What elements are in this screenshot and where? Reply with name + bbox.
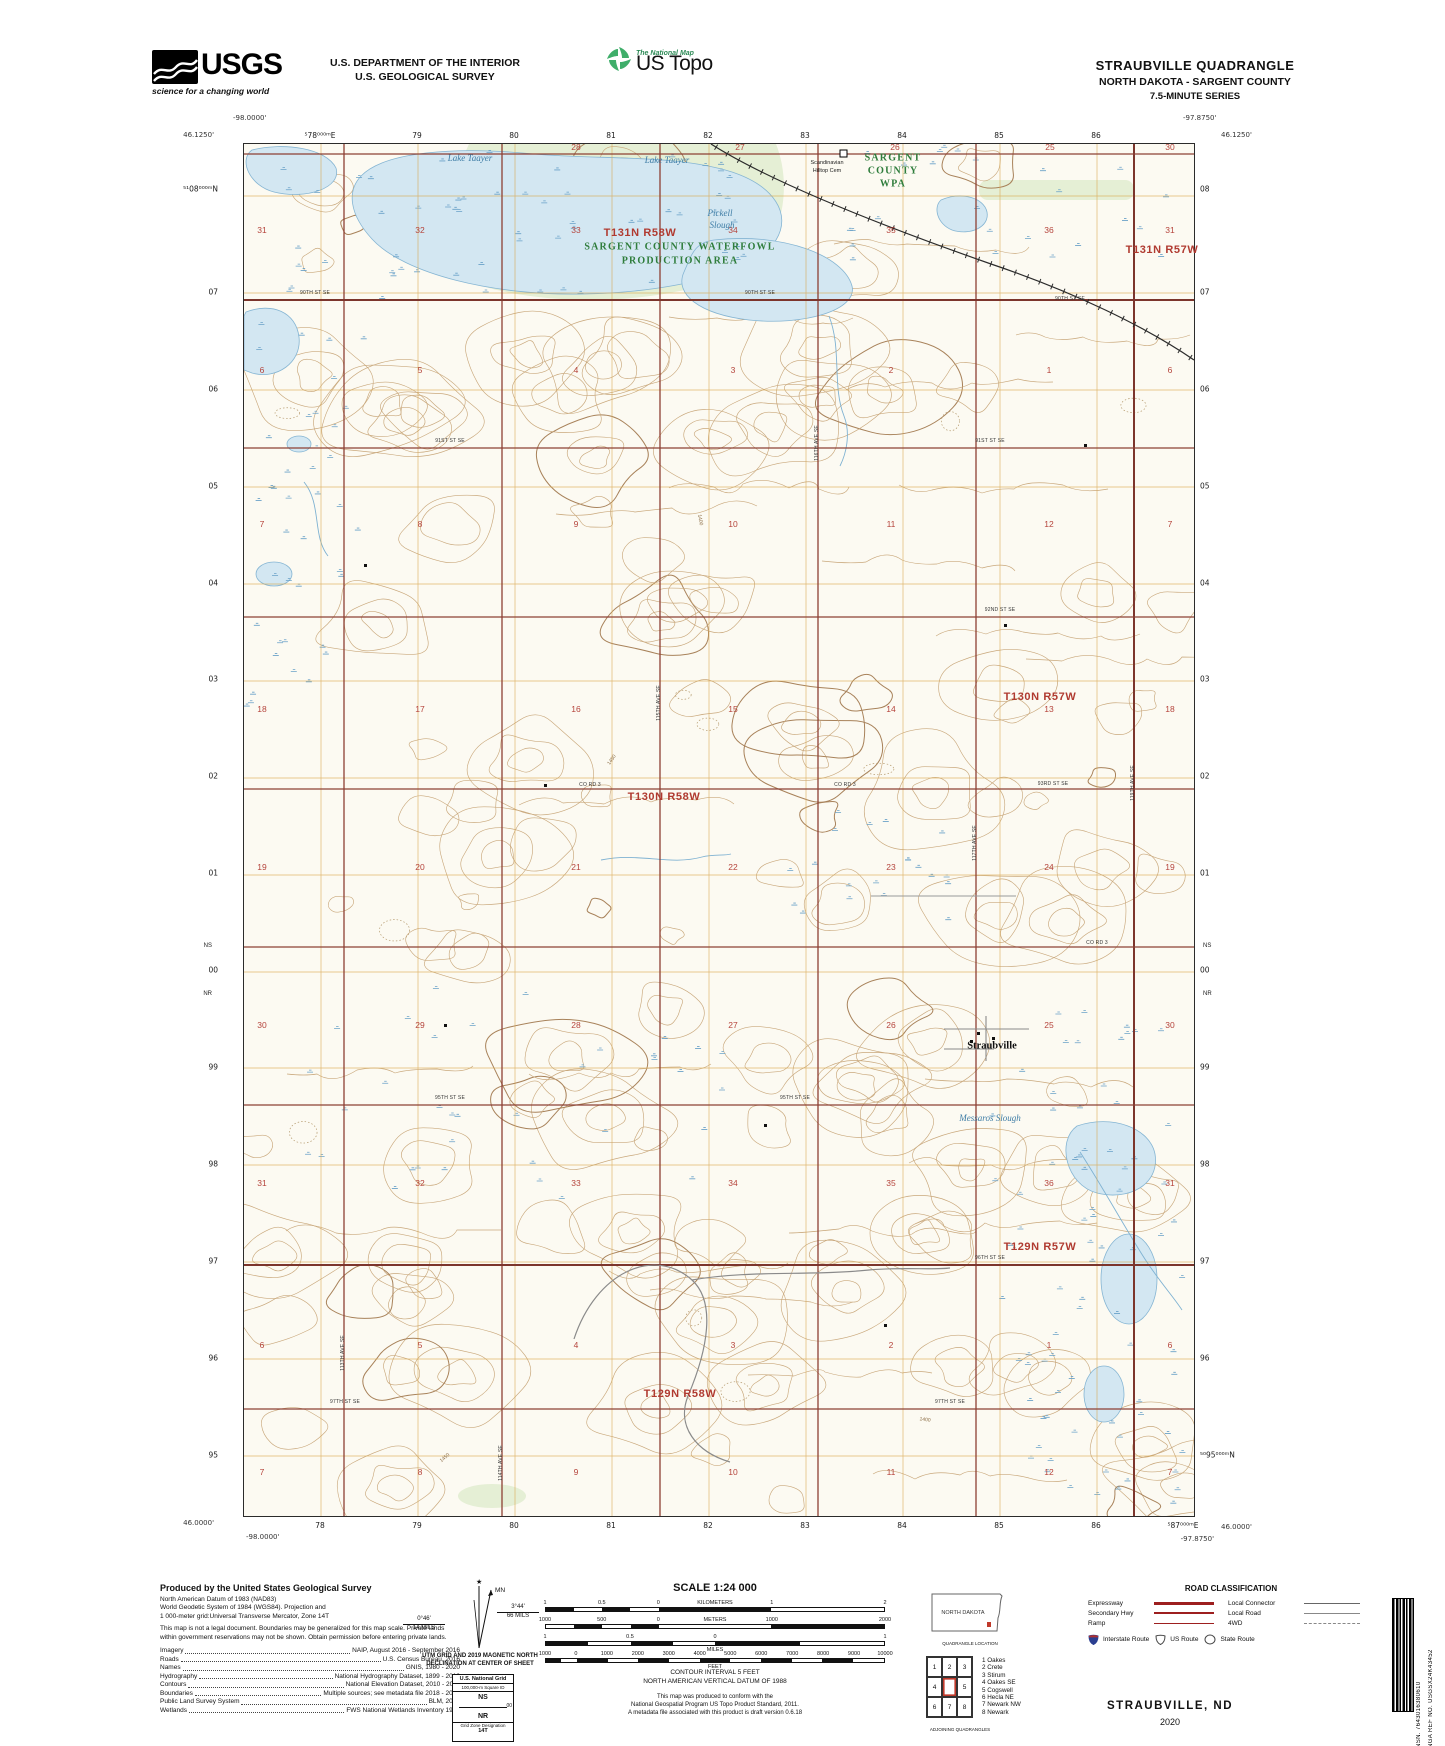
adjoining-quad-name: 6 Hecla NE — [982, 1694, 1021, 1701]
grid-label-bottom: 78 — [315, 1521, 325, 1530]
grid-label-left: 99 — [208, 1063, 218, 1072]
grid-label-right: 00 — [1200, 966, 1210, 975]
adjoining-quad-name: 1 Oakes — [982, 1657, 1021, 1664]
usgs-wordmark: USGS — [201, 50, 282, 80]
grid-label-bottom: 79 — [412, 1521, 422, 1530]
us-topo-sheet: USGS science for a changing world U.S. D… — [0, 0, 1445, 1746]
adjoining-cell: 1 — [927, 1657, 942, 1677]
svg-text:MN: MN — [495, 1587, 505, 1594]
grid-square-id: NR — [203, 991, 212, 997]
scale-bar: 10005000METERS10002000 — [545, 1617, 885, 1634]
adjoining-quadrangles-names: 1 Oakes2 Crete3 Stirum4 Oakes SE5 Cogswe… — [982, 1657, 1021, 1716]
adjoining-quad-name: 7 Newark NW — [982, 1701, 1021, 1708]
ustopo-logo: The National Map US Topo — [606, 46, 713, 72]
us-route-shield-icon — [1155, 1634, 1166, 1645]
sheet-name: STRAUBVILLE, ND — [1040, 1700, 1300, 1712]
quad-heading: STRAUBVILLE QUADRANGLE NORTH DAKOTA - SA… — [1020, 58, 1370, 102]
grid-label-right: 99 — [1200, 1063, 1210, 1072]
this-quadrangle-cell — [942, 1677, 957, 1697]
us-national-grid-box: U.S. National Grid 100,000-m Square ID N… — [452, 1674, 514, 1742]
grid-label-left: 01 — [208, 869, 218, 878]
local-connector-line — [1304, 1603, 1360, 1604]
department-heading: U.S. DEPARTMENT OF THE INTERIOR U.S. GEO… — [330, 56, 520, 84]
usng-zone: 14T — [453, 1728, 513, 1734]
usgs-wave-icon — [152, 50, 198, 84]
grid-label-top: 82 — [703, 131, 713, 140]
legend-local-road: Local Road — [1228, 1610, 1304, 1617]
adjoining-quad-name: 4 Oakes SE — [982, 1679, 1021, 1686]
grid-label-left: 97 — [208, 1257, 218, 1266]
grid-square-id: NS — [204, 943, 212, 949]
scale-bar: 1000010002000300040005000600070008000900… — [545, 1651, 885, 1668]
grid-label-bottom: 84 — [897, 1521, 907, 1530]
data-source-row: HydrographyNational Hydrography Dataset,… — [160, 1673, 460, 1682]
grid-label-top: 85 — [994, 131, 1004, 140]
legend-ramp: Ramp — [1088, 1620, 1154, 1627]
quad-title: STRAUBVILLE QUADRANGLE — [1020, 58, 1370, 73]
fourwd-line — [1304, 1623, 1360, 1624]
grid-label-right: 98 — [1200, 1160, 1210, 1169]
mn-declination: 3°44' 66 MILS — [497, 1604, 539, 1620]
grid-label-top: 80 — [509, 131, 519, 140]
scale-bar: 10.50KILOMETERS12 — [545, 1600, 885, 1617]
usng-00: 00 — [506, 1703, 512, 1709]
nsn-number: NSN. 7643016380610 — [1416, 1598, 1422, 1746]
corner-coordinate: -98.0000' — [233, 114, 266, 122]
adjoining-cell: 7 — [942, 1697, 957, 1717]
adjoining-cell: 8 — [957, 1697, 972, 1717]
grid-label-top: 83 — [800, 131, 810, 140]
svg-text:★: ★ — [476, 1578, 482, 1586]
grid-label-top: ⁵78⁰⁰⁰ᵐE — [305, 131, 336, 140]
corner-coordinate: 46.0000' — [1221, 1523, 1252, 1531]
legend-secondary-hwy: Secondary Hwy — [1088, 1610, 1154, 1617]
gn-declination: 0°46' 14 MILS — [403, 1616, 445, 1632]
grid-label-left: 06 — [208, 385, 218, 394]
grid-label-bottom: 85 — [994, 1521, 1004, 1530]
grid-label-left: 00 — [208, 966, 218, 975]
grid-label-bottom: 83 — [800, 1521, 810, 1530]
adjoining-cell: 6 — [927, 1697, 942, 1717]
grid-label-right: 96 — [1200, 1354, 1210, 1363]
usng-square-id-label: 100,000-m Square ID — [453, 1684, 513, 1692]
corner-coordinate: 46.1250' — [1221, 131, 1252, 139]
grid-label-left: ⁵¹08⁰⁰⁰ᵐN — [183, 185, 218, 194]
dept-line1: U.S. DEPARTMENT OF THE INTERIOR — [330, 56, 520, 70]
dept-line2: U.S. GEOLOGICAL SURVEY — [330, 70, 520, 84]
grid-square-id: NR — [1203, 991, 1212, 997]
grid-label-bottom: 82 — [703, 1521, 713, 1530]
adjoining-quad-name: 3 Stirum — [982, 1672, 1021, 1679]
usgs-logo: USGS — [152, 50, 282, 84]
adjoining-cell: 2 — [942, 1657, 957, 1677]
svg-text:NORTH DAKOTA: NORTH DAKOTA — [941, 1610, 985, 1616]
corner-coordinate: 46.0000' — [183, 1519, 214, 1527]
grid-label-bottom: 80 — [509, 1521, 519, 1530]
usng-title: U.S. National Grid — [453, 1675, 513, 1684]
legend-state-route: State Route — [1220, 1636, 1254, 1643]
legend-us-route: US Route — [1170, 1636, 1198, 1643]
map-canvas — [244, 144, 1194, 1516]
datum-line: World Geodetic System of 1984 (WGS84). P… — [160, 1604, 460, 1613]
nga-ref-number: NGA REF NO. USGSX24K43452 — [1428, 1598, 1434, 1746]
grid-label-bottom: 86 — [1091, 1521, 1101, 1530]
legend-interstate-route: Interstate Route — [1103, 1636, 1149, 1643]
corner-coordinate: -97.8750' — [1183, 114, 1216, 122]
data-source-row: ContoursNational Elevation Dataset, 2010… — [160, 1681, 460, 1690]
adjoining-quad-name: 2 Crete — [982, 1664, 1021, 1671]
secondary-hwy-line — [1154, 1612, 1214, 1614]
grid-label-right: 01 — [1200, 869, 1210, 878]
grid-label-right: ⁵⁰95⁰⁰⁰ᵐN — [1200, 1451, 1235, 1460]
sheet-name-block: STRAUBVILLE, ND 2020 — [1040, 1700, 1300, 1727]
grid-label-left: 95 — [208, 1451, 218, 1460]
ustopo-brand: US Topo — [636, 59, 713, 69]
contour-interval-note: CONTOUR INTERVAL 5 FEET NORTH AMERICAN V… — [545, 1669, 885, 1686]
grid-label-left: 98 — [208, 1160, 218, 1169]
adjoining-quad-name: 8 Newark — [982, 1709, 1021, 1716]
grid-label-top: 79 — [412, 131, 422, 140]
ramp-line — [1154, 1623, 1214, 1624]
grid-label-top: 86 — [1091, 131, 1101, 140]
production-credits: Produced by the United States Geological… — [160, 1584, 460, 1715]
adjoining-cell: 5 — [957, 1677, 972, 1697]
data-source-row: Public Land Survey SystemBLM, 2018 — [160, 1698, 460, 1707]
grid-label-left: 05 — [208, 482, 218, 491]
grid-label-right: 03 — [1200, 675, 1210, 684]
data-source-row: BoundariesMultiple sources; see metadata… — [160, 1690, 460, 1699]
scale-title: SCALE 1:24 000 — [545, 1582, 885, 1594]
interstate-shield-icon — [1088, 1634, 1099, 1645]
legend-4wd: 4WD — [1228, 1620, 1304, 1627]
grid-label-bottom: ⁵87⁰⁰⁰ᵐE — [1168, 1521, 1199, 1530]
corner-coordinate: -98.0000' — [246, 1533, 279, 1541]
adjoining-cell: 4 — [927, 1677, 942, 1697]
grid-label-right: 02 — [1200, 772, 1210, 781]
sheet-year: 2020 — [1040, 1717, 1300, 1727]
data-source-row: WetlandsFWS National Wetlands Inventory … — [160, 1707, 460, 1716]
adjoining-cell: 3 — [957, 1657, 972, 1677]
grid-label-bottom: 81 — [606, 1521, 616, 1530]
grid-label-left: 07 — [208, 288, 218, 297]
corner-coordinate: 46.1250' — [183, 131, 214, 139]
barcode — [1392, 1598, 1414, 1712]
usng-ns: NS — [453, 1694, 513, 1701]
expressway-line — [1154, 1602, 1214, 1605]
road-class-title: ROAD CLASSIFICATION — [1088, 1584, 1374, 1593]
grid-label-left: 03 — [208, 675, 218, 684]
grid-label-top: 84 — [897, 131, 907, 140]
grid-label-right: 08 — [1200, 185, 1210, 194]
grid-label-right: 04 — [1200, 579, 1210, 588]
grid-square-id: NS — [1203, 943, 1211, 949]
local-road-line — [1304, 1613, 1360, 1614]
adjoining-quadrangles-grid: 12345678 — [926, 1656, 973, 1718]
datum-line: North American Datum of 1983 (NAD83) — [160, 1596, 460, 1605]
adjoining-quad-name: 5 Cogswell — [982, 1687, 1021, 1694]
quad-series: 7.5-MINUTE SERIES — [1020, 91, 1370, 102]
credits-title: Produced by the United States Geological… — [160, 1584, 460, 1593]
scale-bar: 10.501MILES — [545, 1634, 885, 1651]
grid-label-left: 04 — [208, 579, 218, 588]
quad-subtitle: NORTH DAKOTA - SARGENT COUNTY — [1020, 76, 1370, 88]
cemetery-symbol — [840, 150, 847, 157]
grid-label-right: 05 — [1200, 482, 1210, 491]
topo-map — [243, 143, 1195, 1517]
adjoining-quadrangles-caption: ADJOINING QUADRANGLES — [905, 1727, 1015, 1732]
grid-label-right: 06 — [1200, 385, 1210, 394]
grid-label-left: 02 — [208, 772, 218, 781]
grid-label-right: 97 — [1200, 1257, 1210, 1266]
quad-location-marker — [987, 1622, 991, 1627]
scale-bars: 10.50KILOMETERS1210005000METERS100020001… — [545, 1600, 885, 1668]
usgs-tagline: science for a changing world — [152, 86, 269, 96]
usng-nr: NR — [453, 1713, 513, 1720]
grid-label-right: 07 — [1200, 288, 1210, 297]
quadrangle-location-caption: QUADRANGLE LOCATION — [920, 1641, 1020, 1646]
grid-label-top: 81 — [606, 131, 616, 140]
grid-label-left: 96 — [208, 1354, 218, 1363]
road-classification-legend: ROAD CLASSIFICATION Expressway Local Con… — [1088, 1584, 1374, 1645]
declination-caption: UTM GRID AND 2019 MAGNETIC NORTH DECLINA… — [400, 1652, 560, 1668]
state-locator-inset: NORTH DAKOTA — [928, 1586, 1014, 1643]
state-route-icon — [1204, 1634, 1216, 1645]
legend-expressway: Expressway — [1088, 1600, 1154, 1607]
ustopo-icon — [606, 46, 632, 72]
corner-coordinate: -97.8750' — [1181, 1535, 1214, 1543]
legend-local-connector: Local Connector — [1228, 1600, 1304, 1607]
standard-conformance-note: This map was produced to conform with th… — [520, 1693, 910, 1717]
